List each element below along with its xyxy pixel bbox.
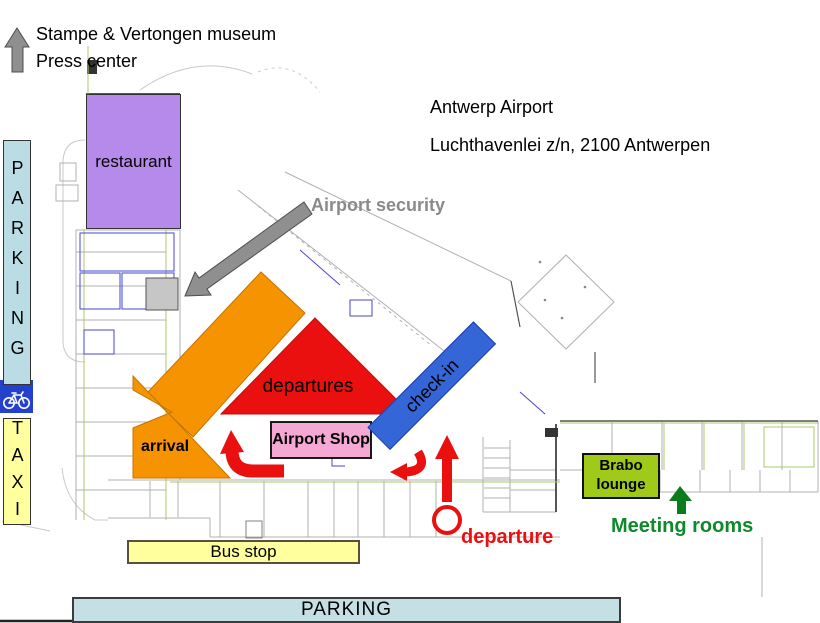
airport-address: Luchthavenlei z/n, 2100 Antwerpen	[430, 135, 710, 156]
departure-circle-icon	[434, 507, 460, 533]
meeting-rooms-arrow-icon	[669, 486, 692, 514]
arrival-label: arrival	[141, 438, 189, 456]
airport-security-label: Airport security	[311, 195, 445, 216]
meeting-rooms-label: Meeting rooms	[611, 515, 753, 538]
brabo-lounge-label-line1: Brabo	[599, 457, 642, 476]
bus-stop-label: Bus stop	[210, 542, 276, 562]
plan-dots	[539, 261, 587, 320]
museum-line1: Stampe & Vertongen museum	[36, 21, 276, 48]
bus-stop-bar: Bus stop	[127, 540, 360, 564]
stairs-icon	[545, 428, 558, 437]
museum-arrow-icon	[5, 28, 29, 72]
museum-line2: Press center	[36, 48, 276, 75]
departures-label: departures	[238, 376, 378, 398]
parking-south-label: PARKING	[301, 599, 392, 621]
museum-direction-text: Stampe & Vertongen museum Press center	[36, 21, 276, 75]
parking-west-label: PARKING	[7, 158, 28, 368]
departure-up-arrow-icon	[435, 435, 459, 502]
airport-map: PARKING TAXI Bus stop PARKING restaurant…	[0, 0, 820, 623]
checkin-curve-arrow-icon	[390, 452, 422, 481]
parking-south-bar: PARKING	[72, 597, 621, 623]
security-room-block	[146, 278, 178, 310]
airport-shop-label: Airport Shop	[272, 431, 370, 449]
airport-shop-zone: Airport Shop	[270, 421, 372, 459]
security-arrow-icon	[185, 202, 312, 296]
brabo-lounge-zone: Brabo lounge	[582, 453, 660, 499]
taxi-label: TAXI	[7, 418, 28, 526]
restaurant-zone: restaurant	[86, 94, 181, 229]
departure-point-label: departure	[461, 526, 553, 549]
airport-title: Antwerp Airport	[430, 97, 553, 118]
restaurant-label: restaurant	[95, 152, 172, 172]
taxi-bar: TAXI	[3, 418, 31, 525]
brabo-lounge-label-line2: lounge	[596, 476, 645, 495]
parking-west-bar: PARKING	[3, 140, 31, 385]
